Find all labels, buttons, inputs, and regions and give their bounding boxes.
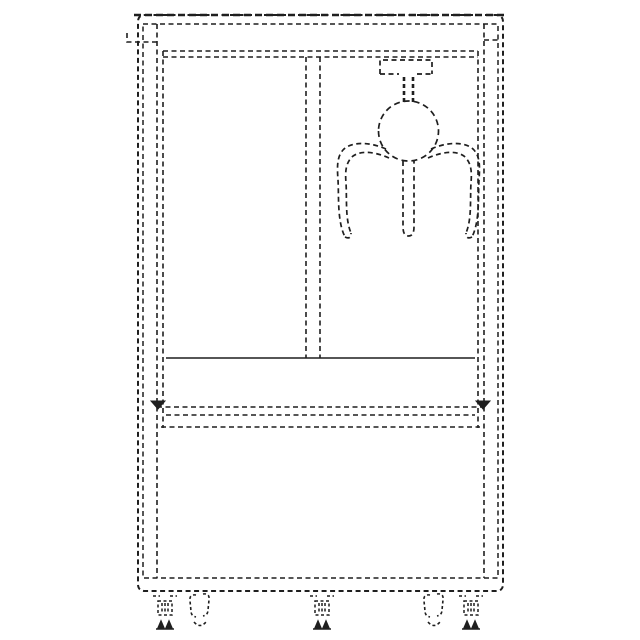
shelf-corner-right [476,401,490,409]
leveler-foot-left-body [158,601,172,615]
shelf-corner-left [151,401,165,409]
claw-arm-right-inner [428,152,471,233]
leveler-foot-center-base [313,621,331,629]
leveler-foot-center-body [315,601,329,615]
hinge-tab-left [127,33,157,42]
leveler-foot-left-base [156,621,174,629]
leveler-foot-right-body [464,601,478,615]
claw-arm-right-tip [466,233,472,238]
claw-machine-line-drawing [0,0,640,640]
claw-arm-left-inner [346,152,389,233]
caster-foot-right [424,594,443,626]
claw-head [379,101,439,161]
leveler-foot-right-base [462,621,480,629]
gantry-carriage [380,60,432,74]
claw-arm-right-outer [431,143,479,237]
claw-arm-left-outer [338,143,386,237]
drawing-canvas [0,0,640,640]
cabinet-inner-shell [143,24,498,578]
claw-arm-left-tip [345,233,351,238]
claw-arm-center [403,161,414,236]
caster-foot-left [190,594,209,626]
